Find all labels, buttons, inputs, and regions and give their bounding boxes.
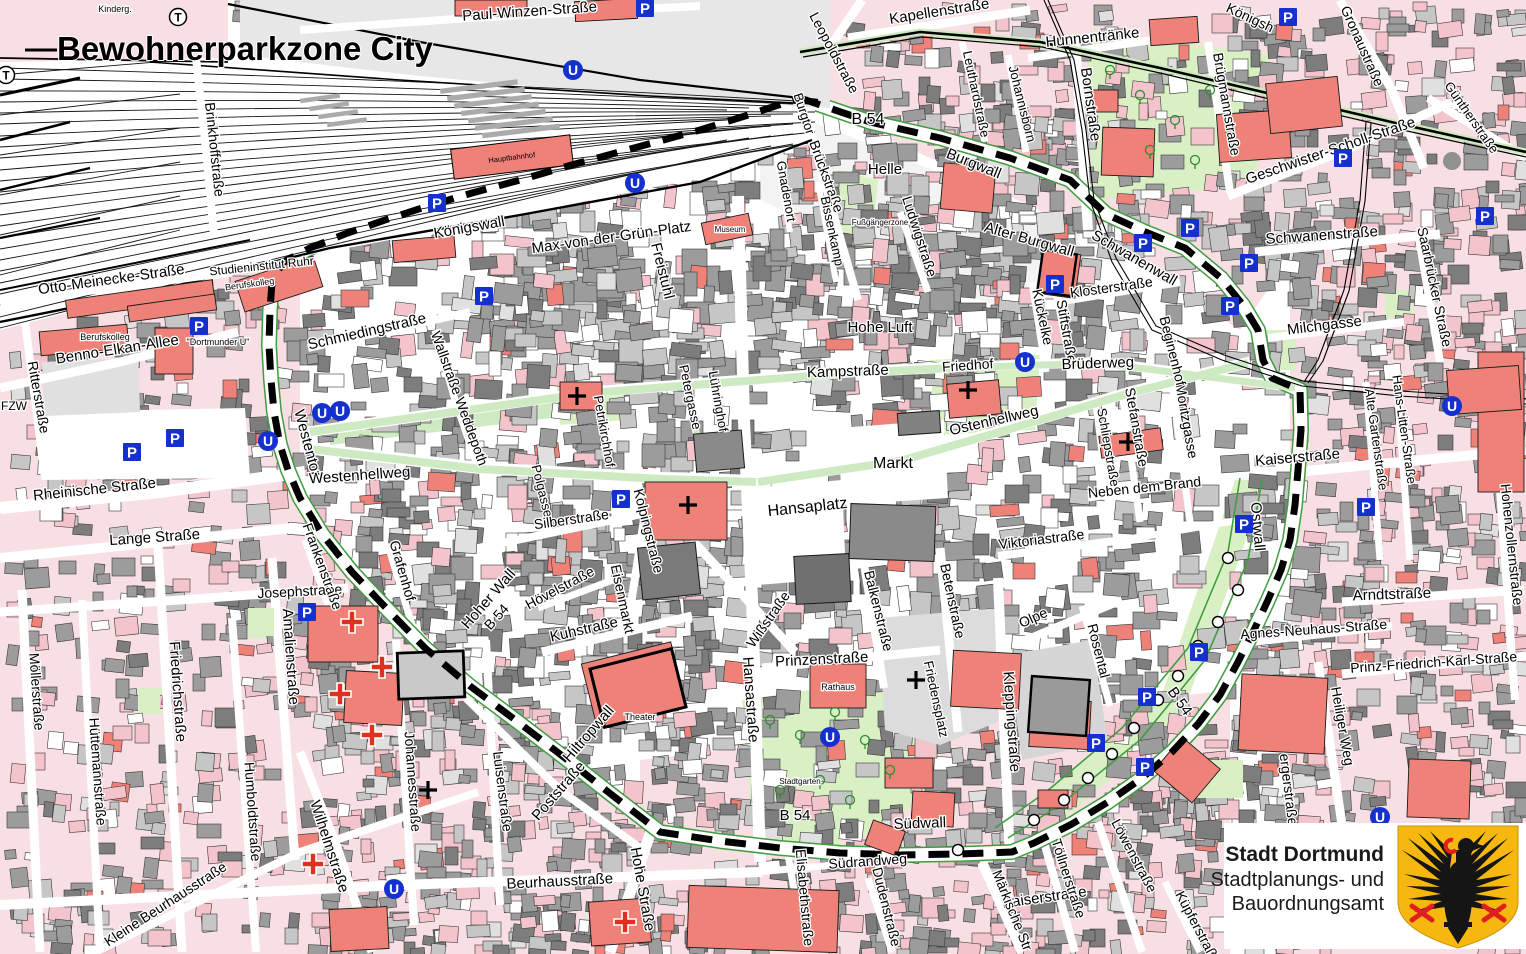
svg-text:U: U bbox=[1375, 809, 1385, 825]
svg-text:Kinderg.: Kinderg. bbox=[98, 4, 132, 14]
svg-text:P: P bbox=[170, 431, 180, 448]
svg-text:P: P bbox=[1142, 690, 1152, 707]
svg-text:Theater: Theater bbox=[624, 712, 655, 722]
svg-text:Berufskolleg: Berufskolleg bbox=[80, 332, 130, 342]
svg-text:Rathaus: Rathaus bbox=[821, 682, 855, 692]
svg-text:P: P bbox=[302, 605, 312, 622]
svg-text:Bauordnungsamt: Bauordnungsamt bbox=[1232, 893, 1385, 915]
svg-text:U: U bbox=[389, 881, 399, 897]
svg-text:U: U bbox=[568, 62, 578, 78]
svg-text:Südwall: Südwall bbox=[893, 814, 946, 833]
svg-text:P: P bbox=[1050, 277, 1060, 294]
svg-text:"Dortmunder U": "Dortmunder U" bbox=[187, 337, 250, 347]
svg-text:P: P bbox=[1194, 645, 1204, 662]
svg-text:U: U bbox=[335, 403, 345, 419]
svg-text:Brüderweg: Brüderweg bbox=[1061, 354, 1134, 374]
svg-text:P: P bbox=[194, 319, 204, 336]
svg-text:Arndtstraße: Arndtstraße bbox=[1352, 585, 1431, 605]
svg-text:P: P bbox=[1283, 10, 1293, 27]
svg-text:P: P bbox=[1480, 209, 1490, 226]
svg-text:Fußgängerzone: Fußgängerzone bbox=[852, 218, 909, 227]
svg-text:P: P bbox=[1138, 236, 1148, 253]
svg-text:P: P bbox=[616, 492, 626, 509]
svg-text:Markt: Markt bbox=[873, 455, 914, 472]
svg-text:Bewohnerparkzone City: Bewohnerparkzone City bbox=[57, 30, 434, 67]
svg-text:P: P bbox=[432, 196, 442, 213]
svg-text:P: P bbox=[1091, 736, 1101, 753]
svg-text:U: U bbox=[1020, 354, 1030, 370]
svg-text:P: P bbox=[1225, 299, 1235, 316]
svg-text:T: T bbox=[174, 11, 182, 25]
svg-text:Helle: Helle bbox=[868, 161, 902, 178]
svg-text:B 54: B 54 bbox=[780, 807, 811, 824]
svg-text:P: P bbox=[640, 1, 650, 18]
svg-text:T: T bbox=[2, 69, 10, 83]
svg-text:U: U bbox=[825, 729, 835, 745]
svg-text:P: P bbox=[1140, 760, 1150, 777]
svg-text:P: P bbox=[1185, 221, 1195, 238]
svg-text:Stadt Dortmund: Stadt Dortmund bbox=[1225, 843, 1384, 866]
svg-text:U: U bbox=[263, 433, 273, 449]
svg-text:U: U bbox=[317, 405, 327, 421]
svg-text:FZW: FZW bbox=[1, 399, 28, 413]
svg-text:P: P bbox=[127, 445, 137, 462]
svg-text:Kampstraße: Kampstraße bbox=[807, 362, 889, 382]
svg-text:U: U bbox=[1447, 398, 1457, 414]
svg-text:Stadtgarten: Stadtgarten bbox=[779, 777, 820, 786]
svg-text:Museum: Museum bbox=[715, 225, 746, 234]
svg-text:Hohe Luft: Hohe Luft bbox=[847, 319, 913, 336]
svg-text:P: P bbox=[1239, 517, 1249, 534]
svg-text:Stadtplanungs- und: Stadtplanungs- und bbox=[1211, 869, 1384, 891]
svg-text:B 54: B 54 bbox=[852, 111, 885, 128]
svg-text:U: U bbox=[630, 175, 640, 191]
svg-text:P: P bbox=[1338, 151, 1348, 168]
svg-text:P: P bbox=[479, 289, 489, 306]
svg-text:P: P bbox=[1244, 256, 1254, 273]
svg-text:P: P bbox=[1361, 500, 1371, 517]
